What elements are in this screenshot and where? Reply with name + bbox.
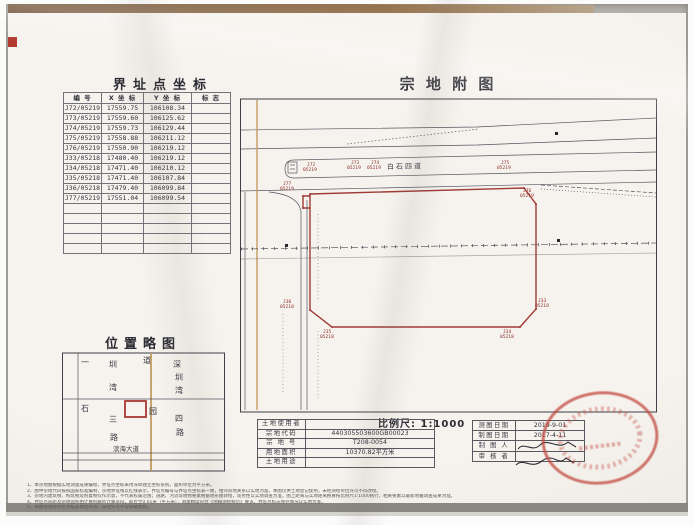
point-code: 05219 — [280, 186, 294, 192]
point-x: 17550.90 — [102, 144, 144, 154]
sketch-label: 道 — [143, 355, 151, 365]
field-label: 宗 地 号 — [258, 439, 306, 449]
sketch-label: 四 — [175, 414, 183, 423]
scanned-document-frame: 界址点坐标 编 号 X 坐 标 Y 坐 标 标 志 J72/0521917559… — [0, 0, 694, 525]
point-x: 17559.73 — [102, 124, 144, 134]
field-value: T208-0054 — [306, 439, 435, 449]
parcel-location-box — [125, 401, 146, 417]
field-value — [306, 458, 435, 468]
point-code: 05218 — [320, 334, 334, 340]
empty-row — [64, 214, 231, 224]
parcel-map-title: 宗 地 附 图 — [368, 73, 528, 94]
point-y: 106129.44 — [144, 124, 192, 134]
red-marker — [8, 37, 17, 47]
point-code: 05219 — [347, 165, 361, 171]
sketch-label: 圳 — [175, 372, 183, 382]
point-number: J33/05218 — [64, 154, 102, 164]
stamp-arc-text — [557, 404, 643, 471]
field-value — [306, 420, 435, 430]
point-mark — [192, 124, 231, 134]
note-line: 5、本图经测绘单位审核盖章后有效，未经许可不得转载复制。 — [27, 505, 385, 511]
empty-row — [64, 244, 231, 254]
point-x: 17471.40 — [102, 174, 144, 184]
table-row: 宗地代码440305503600GB00023 — [258, 429, 435, 439]
table-row: 土地使用者 — [258, 420, 435, 430]
empty-row — [64, 224, 231, 234]
point-x: 17479.40 — [102, 184, 144, 194]
table-row: J33/0521817480.40106219.12 — [64, 154, 231, 164]
sketch-label: 路 — [110, 432, 118, 442]
point-x: 17558.88 — [102, 134, 144, 144]
point-number: J35/05218 — [64, 174, 102, 184]
point-number: J34/05218 — [64, 164, 102, 174]
table-row: J35/0521817471.40106107.84 — [64, 174, 231, 184]
table-row: 土地用途 — [258, 458, 435, 468]
point-mark — [192, 174, 231, 184]
stamp-ring — [538, 386, 662, 489]
point-number: J77/05219 — [64, 194, 102, 204]
empty-row — [64, 204, 231, 214]
empty-row — [64, 234, 231, 244]
point-mark — [192, 154, 231, 164]
point-mark — [192, 114, 231, 124]
table-row: J73/0521917559.60106125.62 — [64, 114, 231, 124]
point-code: 05219 — [303, 167, 317, 173]
point-y: 106219.12 — [144, 144, 192, 154]
field-value: 10370.82平方米 — [306, 448, 435, 458]
field-label: 宗地代码 — [258, 429, 306, 439]
sketch-label: 三 — [109, 415, 117, 424]
coordinate-table-header: 编 号 X 坐 标 Y 坐 标 标 志 — [64, 93, 231, 104]
sketch-label: 湾 — [109, 382, 117, 392]
table-row: J72/0521917559.75106108.34 — [64, 104, 231, 114]
stamp-center-text — [579, 443, 623, 448]
land-info-table: 土地使用者 宗地代码440305503600GB00023 宗 地 号T208-… — [257, 419, 435, 468]
field-label: 土地用途 — [258, 458, 306, 468]
point-number: J75/05219 — [64, 134, 102, 144]
point-x: 17480.40 — [102, 154, 144, 164]
point-y: 106107.84 — [144, 174, 192, 184]
col-header-y: Y 坐 标 — [144, 93, 192, 104]
sketch-label: 石 — [81, 404, 89, 413]
field-label: 用地面积 — [258, 448, 306, 458]
point-number: J76/05219 — [64, 144, 102, 154]
document-content: 界址点坐标 编 号 X 坐 标 Y 坐 标 标 志 J72/0521917559… — [0, 0, 694, 525]
table-row: J36/0521817479.40106099.84 — [64, 184, 231, 194]
point-code: 05219 — [520, 193, 534, 199]
point-x: 17559.60 — [102, 114, 144, 124]
point-y: 106210.12 — [144, 164, 192, 174]
point-code: 05219 — [497, 165, 511, 171]
col-header-number: 编 号 — [64, 93, 102, 104]
point-mark — [192, 164, 231, 174]
sketch-label: 圳 — [109, 359, 117, 369]
sketch-label: 一 — [81, 358, 89, 367]
table-row: 用地面积10370.82平方米 — [258, 448, 435, 458]
point-code: 05219 — [367, 165, 381, 171]
point-y: 106125.62 — [144, 114, 192, 124]
point-mark — [192, 104, 231, 114]
point-number: J73/05219 — [64, 114, 102, 124]
table-row: J76/0521917550.90106219.12 — [64, 144, 231, 154]
field-value: 440305503600GB00023 — [306, 429, 435, 439]
footnotes: 1、本宗地图根据实地测量成果编绘，界址点坐标采用深圳独立坐标系统，面积单位为平方… — [27, 483, 677, 511]
coordinate-table: 编 号 X 坐 标 Y 坐 标 标 志 J72/0521917559.75106… — [63, 92, 231, 254]
col-header-mark: 标 志 — [192, 93, 231, 104]
road-name-label: 白石四道 — [387, 161, 423, 171]
point-x: 17471.40 — [102, 164, 144, 174]
location-sketch-map: 一 圳 湾 道 深 圳 湾 石 三 路 园 四 路 滨海大道 — [61, 350, 229, 478]
col-header-x: X 坐 标 — [102, 93, 144, 104]
point-code: 05218 — [535, 303, 549, 309]
map-road-lines — [241, 100, 656, 410]
table-row: 宗 地 号T208-0054 — [258, 439, 435, 449]
point-number: J74/05219 — [64, 124, 102, 134]
table-row: J74/0521917559.73106129.44 — [64, 124, 231, 134]
point-mark — [192, 144, 231, 154]
table-row: J77/0521917551.04106099.54 — [64, 194, 231, 204]
point-y: 106099.84 — [144, 184, 192, 194]
parcel-map: 白石四道 J7205219 J7305219 J7405219 J7505219… — [239, 96, 659, 418]
field-label: 测图日期 — [473, 421, 516, 431]
sketch-bottom-road-label: 滨海大道 — [113, 444, 140, 453]
point-y: 106108.34 — [144, 104, 192, 114]
point-y: 106099.54 — [144, 194, 192, 204]
sketch-label: 园 — [149, 407, 157, 416]
red-seal-stamp — [530, 384, 670, 496]
point-number: J72/05219 — [64, 104, 102, 114]
table-row: J34/0521817471.40106210.12 — [64, 164, 231, 174]
field-label: 土地使用者 — [258, 420, 306, 430]
coordinate-table-title: 界址点坐标 — [88, 74, 238, 93]
table-row: J75/0521917558.88106211.12 — [64, 134, 231, 144]
point-mark — [192, 184, 231, 194]
point-mark — [192, 194, 231, 204]
point-mark — [192, 134, 231, 144]
point-x: 17551.04 — [102, 194, 144, 204]
point-code: 05218 — [500, 334, 514, 340]
sketch-label: 深 — [173, 360, 181, 369]
point-number: J36/05218 — [64, 184, 102, 194]
point-code: 05218 — [280, 304, 294, 310]
point-x: 17559.75 — [102, 104, 144, 114]
map-symbols — [283, 132, 560, 401]
point-y: 106211.12 — [144, 134, 192, 144]
map-border — [241, 99, 657, 412]
sketch-label: 湾 — [175, 385, 183, 395]
point-y: 106219.12 — [144, 154, 192, 164]
sketch-label: 路 — [176, 427, 184, 437]
